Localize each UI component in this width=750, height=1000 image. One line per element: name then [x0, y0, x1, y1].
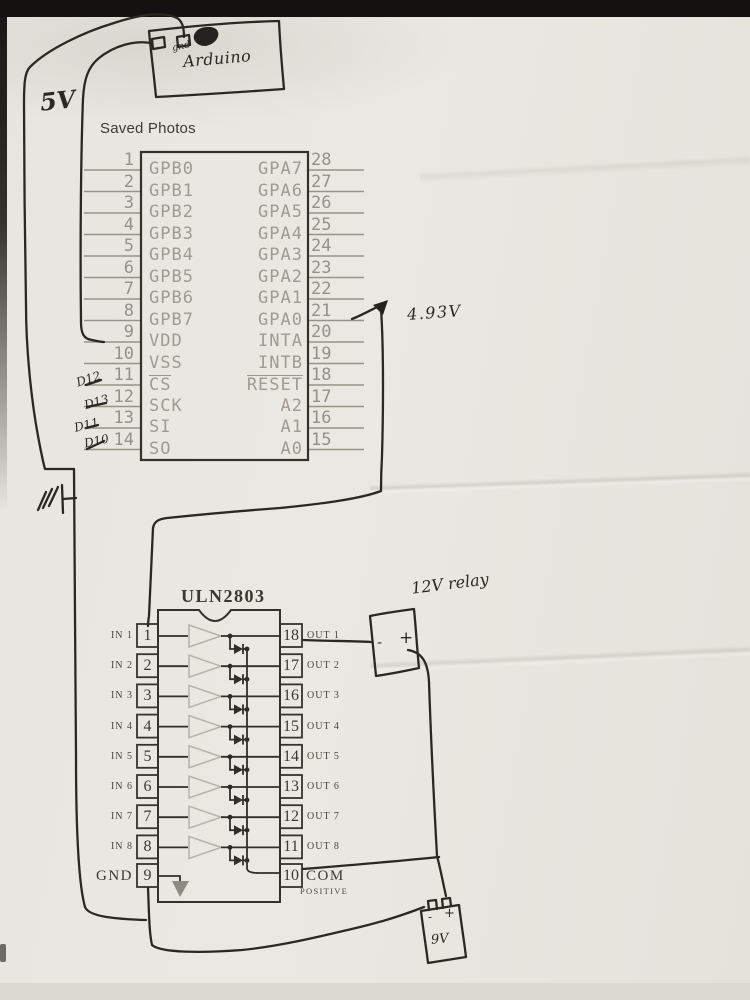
uln-pin-box: [280, 835, 302, 858]
diode-branch: [230, 817, 234, 830]
uln-pin-box: [280, 775, 302, 798]
uln-pin-box: [280, 745, 302, 768]
uln-pin-box: [137, 624, 158, 647]
arduino-pin-pad: [177, 35, 190, 47]
circuit-schematic: [0, 0, 750, 1000]
printed-ic-outlines: [141, 152, 308, 902]
diode-icon: [234, 855, 243, 865]
com-wire: [303, 857, 439, 869]
diode-icon: [234, 795, 243, 805]
buffer-triangle-icon: [189, 716, 221, 738]
diode-icon: [234, 765, 243, 775]
mcp-ic-outline: [141, 152, 308, 460]
uln-pin-box: [137, 745, 158, 768]
diode-icon: [234, 825, 243, 835]
diode-branch: [230, 757, 234, 770]
gnd-stub: [158, 876, 180, 881]
diode-branch: [230, 847, 234, 860]
gpa0-wire: [352, 306, 379, 319]
battery-outline: [421, 905, 466, 963]
gnd-rail-wire: [24, 14, 184, 920]
uln-pin-box: [137, 715, 158, 738]
buffer-triangle-icon: [189, 685, 221, 707]
gnd-arrow-icon: [172, 881, 189, 897]
dpin-tick: [86, 380, 106, 449]
com-rail: [247, 649, 280, 873]
hand-drawn-wires: [24, 14, 466, 963]
relay-outline: [370, 609, 419, 676]
gnd-to-battery-wire: [148, 888, 424, 952]
uln-pin-box: [137, 835, 158, 858]
uln-pin-box: [137, 684, 158, 707]
uln-pin-box: [280, 624, 302, 647]
buffer-triangle-icon: [189, 776, 221, 798]
arduino-pin-pad: [152, 37, 165, 49]
diode-branch: [230, 666, 234, 679]
buffer-triangle-icon: [189, 625, 221, 647]
diode-branch: [230, 636, 234, 649]
gpa0-to-in1-wire: [148, 309, 383, 626]
ground-symbol-link: [63, 498, 76, 499]
buffer-triangle-icon: [189, 806, 221, 828]
buffer-triangle-icon: [189, 655, 221, 677]
uln-pin-box: [280, 654, 302, 677]
buffer-triangle-icon: [189, 746, 221, 768]
diode-icon: [234, 735, 243, 745]
uln-pin-box: [137, 805, 158, 828]
diode-branch: [230, 787, 234, 800]
diode-branch: [230, 727, 234, 740]
diode-icon: [234, 704, 243, 714]
uln-pin-box: [137, 775, 158, 798]
diode-icon: [234, 674, 243, 684]
ink-fills: [194, 27, 388, 315]
uln-pin-box: [280, 805, 302, 828]
diode-branch: [230, 696, 234, 709]
uln-pin-box: [280, 864, 302, 887]
generated-printed-parts: [84, 170, 364, 887]
diode-icon: [234, 644, 243, 654]
ground-symbol-hatch: [38, 487, 58, 510]
uln-pin-box: [137, 864, 158, 887]
buffer-triangle-icon: [189, 836, 221, 858]
uln-pin-box: [280, 715, 302, 738]
uln-pin-box: [137, 654, 158, 677]
out1-to-relay-wire: [303, 640, 371, 642]
uln-pin-box: [280, 684, 302, 707]
